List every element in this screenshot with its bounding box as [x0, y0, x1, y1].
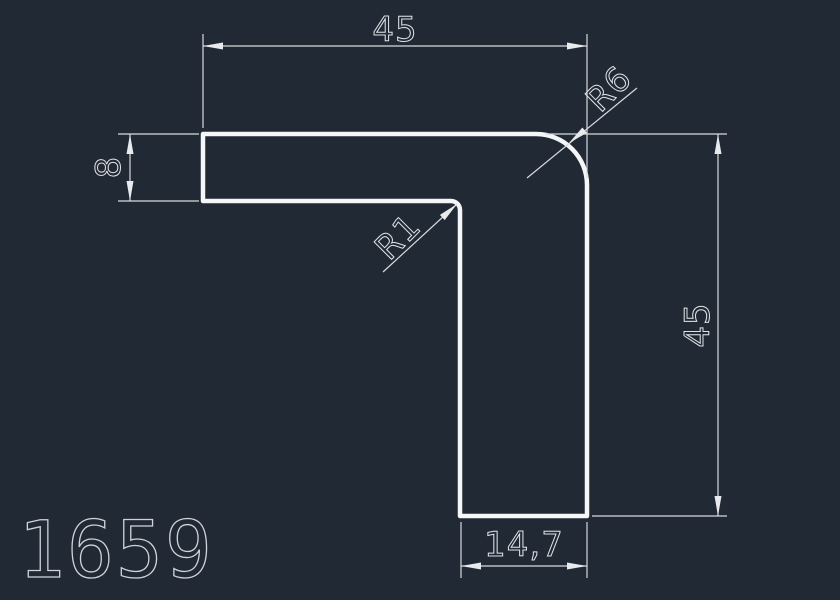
dimension-text-left-thickness[interactable]: 8 — [89, 156, 129, 179]
dimension-text-top-width[interactable]: 45 — [372, 10, 417, 50]
dimension-text-bottom-width[interactable]: 14,7 — [484, 525, 564, 565]
part-number-text[interactable]: 1659 — [18, 506, 214, 596]
cad-viewport[interactable]: 45 8 45 14,7 — [0, 0, 840, 600]
cad-drawing-svg[interactable]: 45 8 45 14,7 — [0, 0, 840, 600]
dimension-text-right-height[interactable]: 45 — [678, 302, 718, 347]
